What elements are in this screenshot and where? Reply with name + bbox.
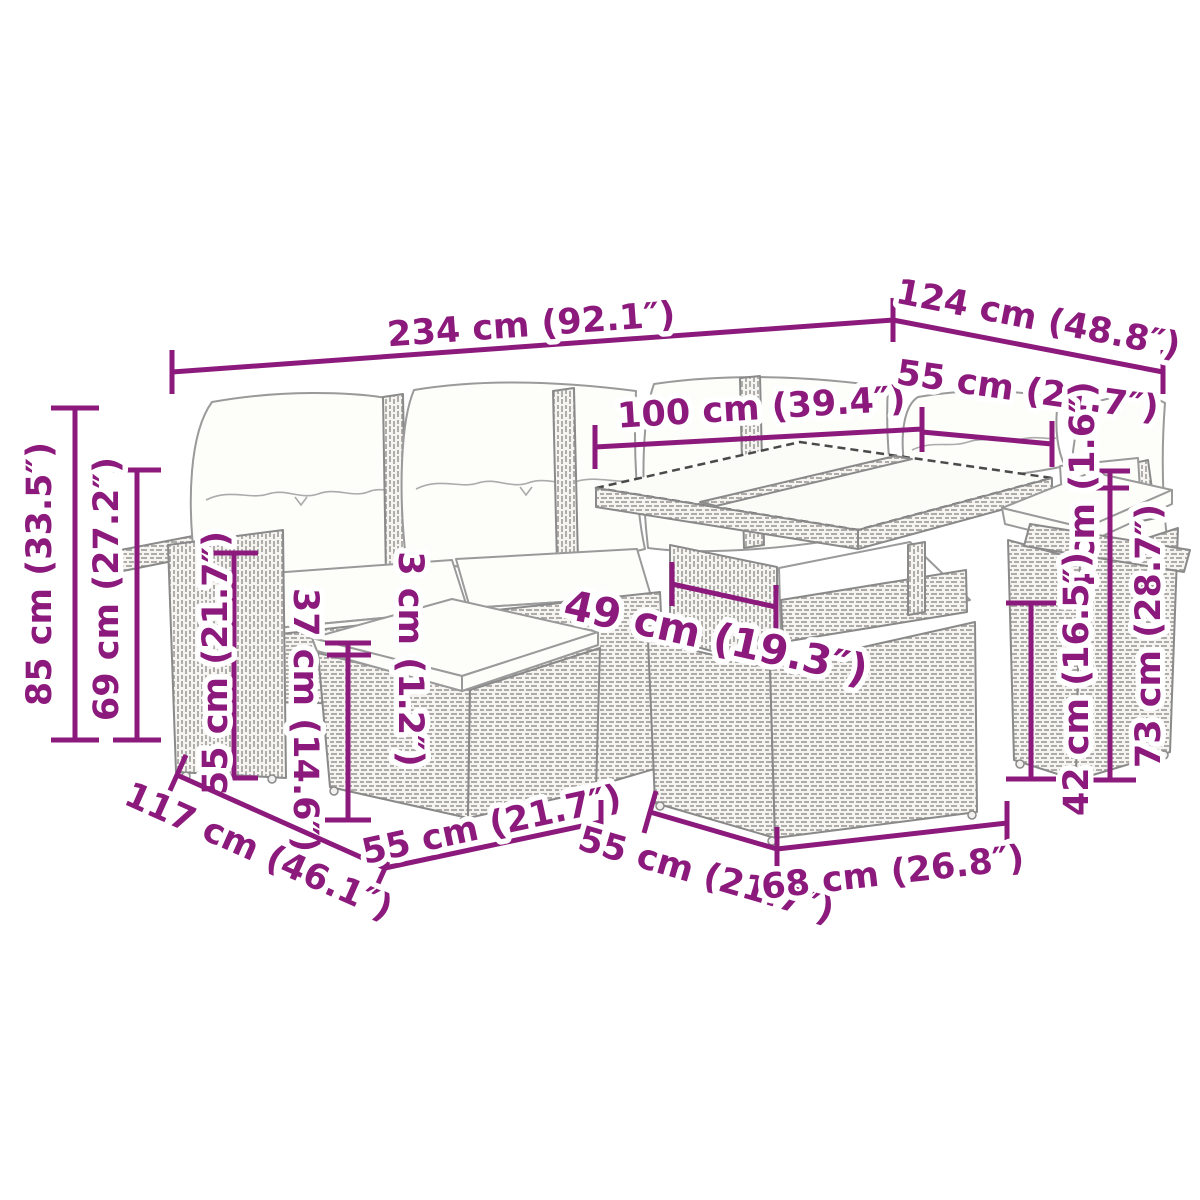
furniture-foot	[330, 787, 338, 795]
dimension-label: 73 cm (28.7″)	[1129, 504, 1169, 768]
dimension-label: 69 cm (27.2″)	[87, 457, 127, 721]
furniture-foot	[968, 811, 976, 819]
furniture-foot	[1016, 760, 1024, 768]
dimension-diagram: 234 cm (92.1″) 124 cm (48.8″) 100 cm (39…	[0, 0, 1200, 1200]
furniture-foot	[268, 775, 276, 783]
dimension-label: 55 cm (21.7″)	[196, 531, 236, 795]
dimension-label: 85 cm (33.5″)	[20, 442, 60, 706]
dimension-label: 3 cm (1.2″)	[390, 551, 430, 767]
dimension-back-height: 69 cm (27.2″)	[87, 457, 161, 740]
table-support-post	[908, 542, 925, 615]
back-pillow-2	[402, 383, 645, 568]
pillow-strap	[553, 388, 578, 565]
dimension-label: 42 cm (16.5″)	[1057, 552, 1097, 816]
dimension-label: 37 cm (14.6″)	[285, 588, 325, 852]
diagram-canvas: 234 cm (92.1″) 124 cm (48.8″) 100 cm (39…	[0, 0, 1200, 1200]
dimension-label: 124 cm (48.8″)	[893, 272, 1184, 366]
dimension-label: 117 cm (46.1″)	[118, 775, 398, 929]
furniture-foot	[656, 802, 664, 810]
